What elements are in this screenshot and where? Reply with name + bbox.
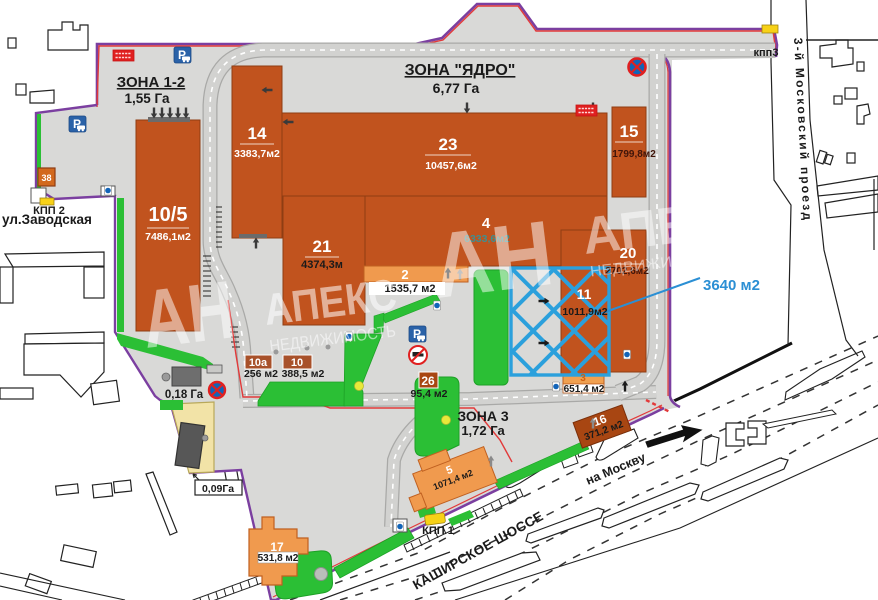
svg-text:6,77 Га: 6,77 Га [433, 80, 480, 96]
svg-text:14: 14 [248, 124, 267, 143]
svg-text:17: 17 [270, 540, 284, 554]
svg-text:ул.Заводская: ул.Заводская [2, 212, 92, 227]
svg-text:0,18 Га: 0,18 Га [165, 389, 204, 401]
svg-text:3: 3 [580, 373, 586, 384]
svg-text:7486,1м2: 7486,1м2 [145, 231, 191, 243]
svg-text:АН: АН [137, 264, 239, 366]
svg-text:ЗОНА "ЯДРО": ЗОНА "ЯДРО" [405, 62, 516, 79]
svg-text:1,72 Га: 1,72 Га [461, 423, 505, 438]
svg-text:ЗОНА 3: ЗОНА 3 [457, 408, 509, 424]
svg-text:кпп3: кпп3 [754, 47, 779, 59]
svg-text:11: 11 [577, 286, 592, 302]
svg-text:1799,8м2: 1799,8м2 [612, 149, 656, 160]
svg-text:10/5: 10/5 [149, 204, 188, 226]
svg-text:КПП 1: КПП 1 [422, 525, 454, 537]
svg-text:256 м2: 256 м2 [244, 368, 278, 380]
svg-text:15: 15 [620, 122, 639, 141]
svg-text:21: 21 [313, 237, 332, 256]
svg-text:0,09Га: 0,09Га [202, 483, 234, 495]
svg-text:3383,7м2: 3383,7м2 [234, 148, 280, 160]
svg-text:95,4 м2: 95,4 м2 [411, 388, 448, 400]
svg-text:3640 м2: 3640 м2 [703, 277, 760, 294]
svg-text:1,55 Га: 1,55 Га [124, 91, 170, 106]
svg-text:388,5 м2: 388,5 м2 [282, 368, 325, 380]
svg-text:26: 26 [421, 374, 435, 388]
svg-text:23: 23 [439, 135, 458, 154]
svg-text:ЗОНА 1-2: ЗОНА 1-2 [117, 74, 185, 91]
svg-text:10457,6м2: 10457,6м2 [425, 160, 477, 172]
svg-text:АН: АН [427, 202, 559, 318]
svg-text:531,8 м2: 531,8 м2 [258, 553, 299, 564]
svg-text:4374,3м: 4374,3м [301, 259, 343, 271]
svg-text:2: 2 [401, 267, 408, 282]
svg-text:1011,9м2: 1011,9м2 [562, 306, 607, 318]
svg-text:38: 38 [41, 173, 51, 183]
svg-text:651,4 м2: 651,4 м2 [564, 384, 605, 395]
